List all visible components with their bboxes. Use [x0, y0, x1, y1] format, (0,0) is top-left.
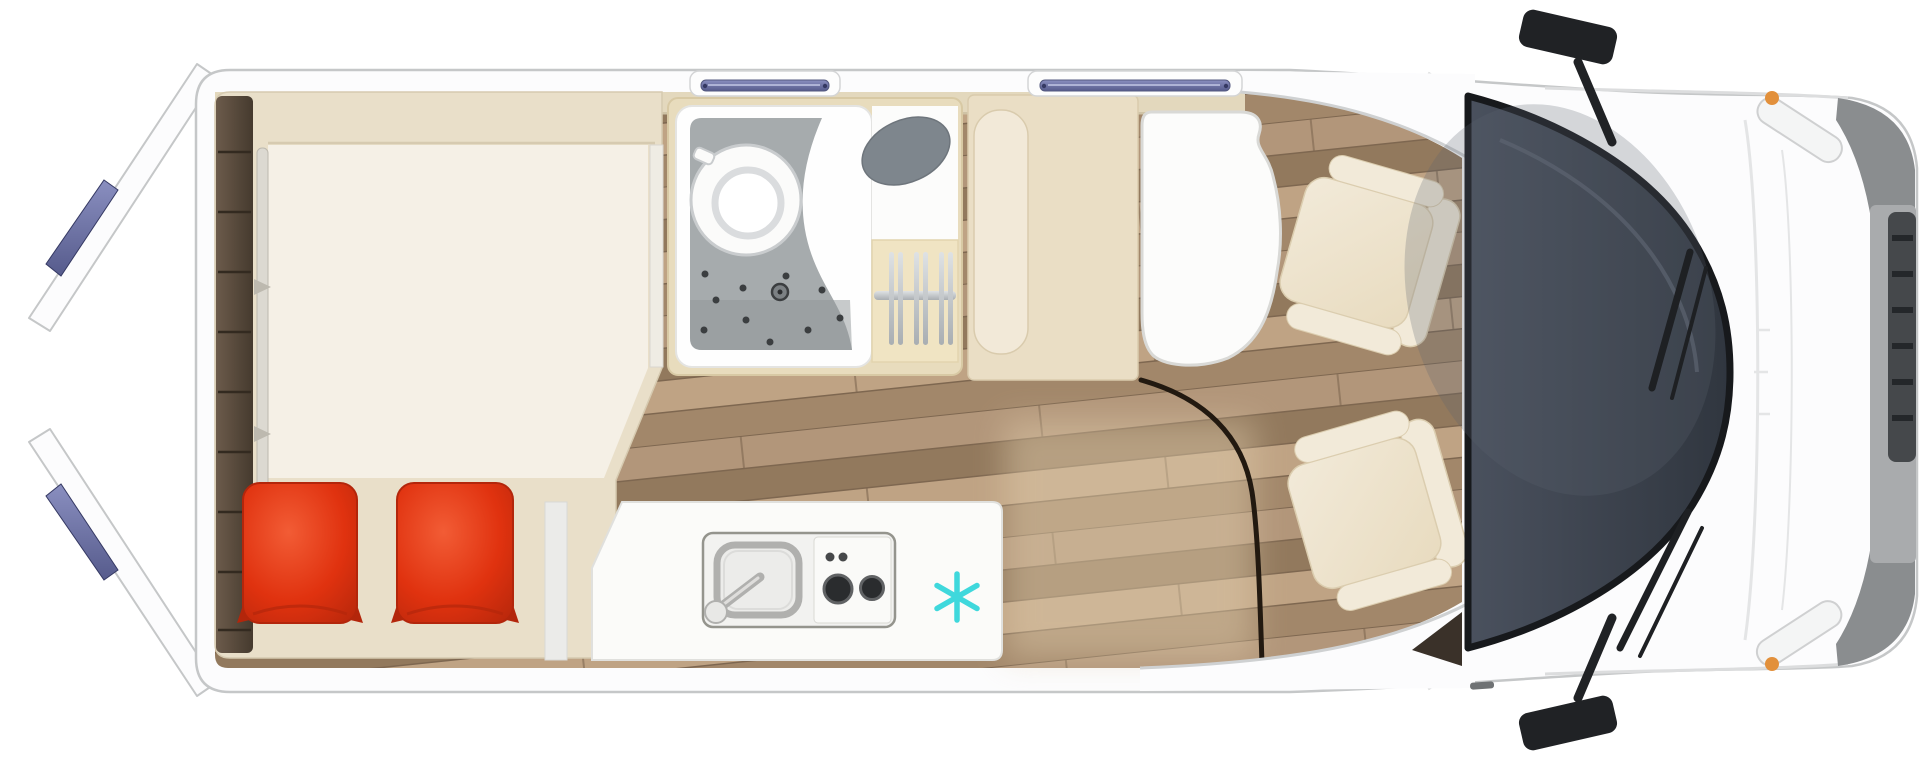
floor-light-patch [1005, 420, 1255, 660]
front-grille [1888, 212, 1916, 462]
rear-door-bottom [29, 429, 216, 696]
stove-burner-large [824, 575, 852, 603]
rear-door-top [29, 64, 216, 331]
bed-side-board [650, 145, 663, 367]
window-bathroom [690, 71, 840, 96]
floorplan-svg [0, 0, 1920, 760]
toilet [691, 145, 801, 255]
mattress [268, 145, 648, 478]
wardrobe [872, 240, 958, 362]
indicator-orange-bottom [1765, 657, 1779, 671]
bed-rail [257, 148, 268, 505]
pillow-right [391, 483, 519, 623]
rear-doors [29, 64, 216, 696]
bench-cushion [974, 110, 1028, 354]
stove-burner-small [861, 577, 884, 600]
shower-drain-center [778, 290, 783, 295]
bathroom [668, 98, 962, 375]
indicator-orange-top [1765, 91, 1779, 105]
kitchen-side-panel [545, 502, 567, 660]
kitchen [545, 502, 1002, 660]
dining-table [1142, 112, 1280, 365]
floorplan-canvas [0, 0, 1920, 760]
window-dinette [1028, 71, 1242, 96]
pillow-left [237, 483, 363, 623]
